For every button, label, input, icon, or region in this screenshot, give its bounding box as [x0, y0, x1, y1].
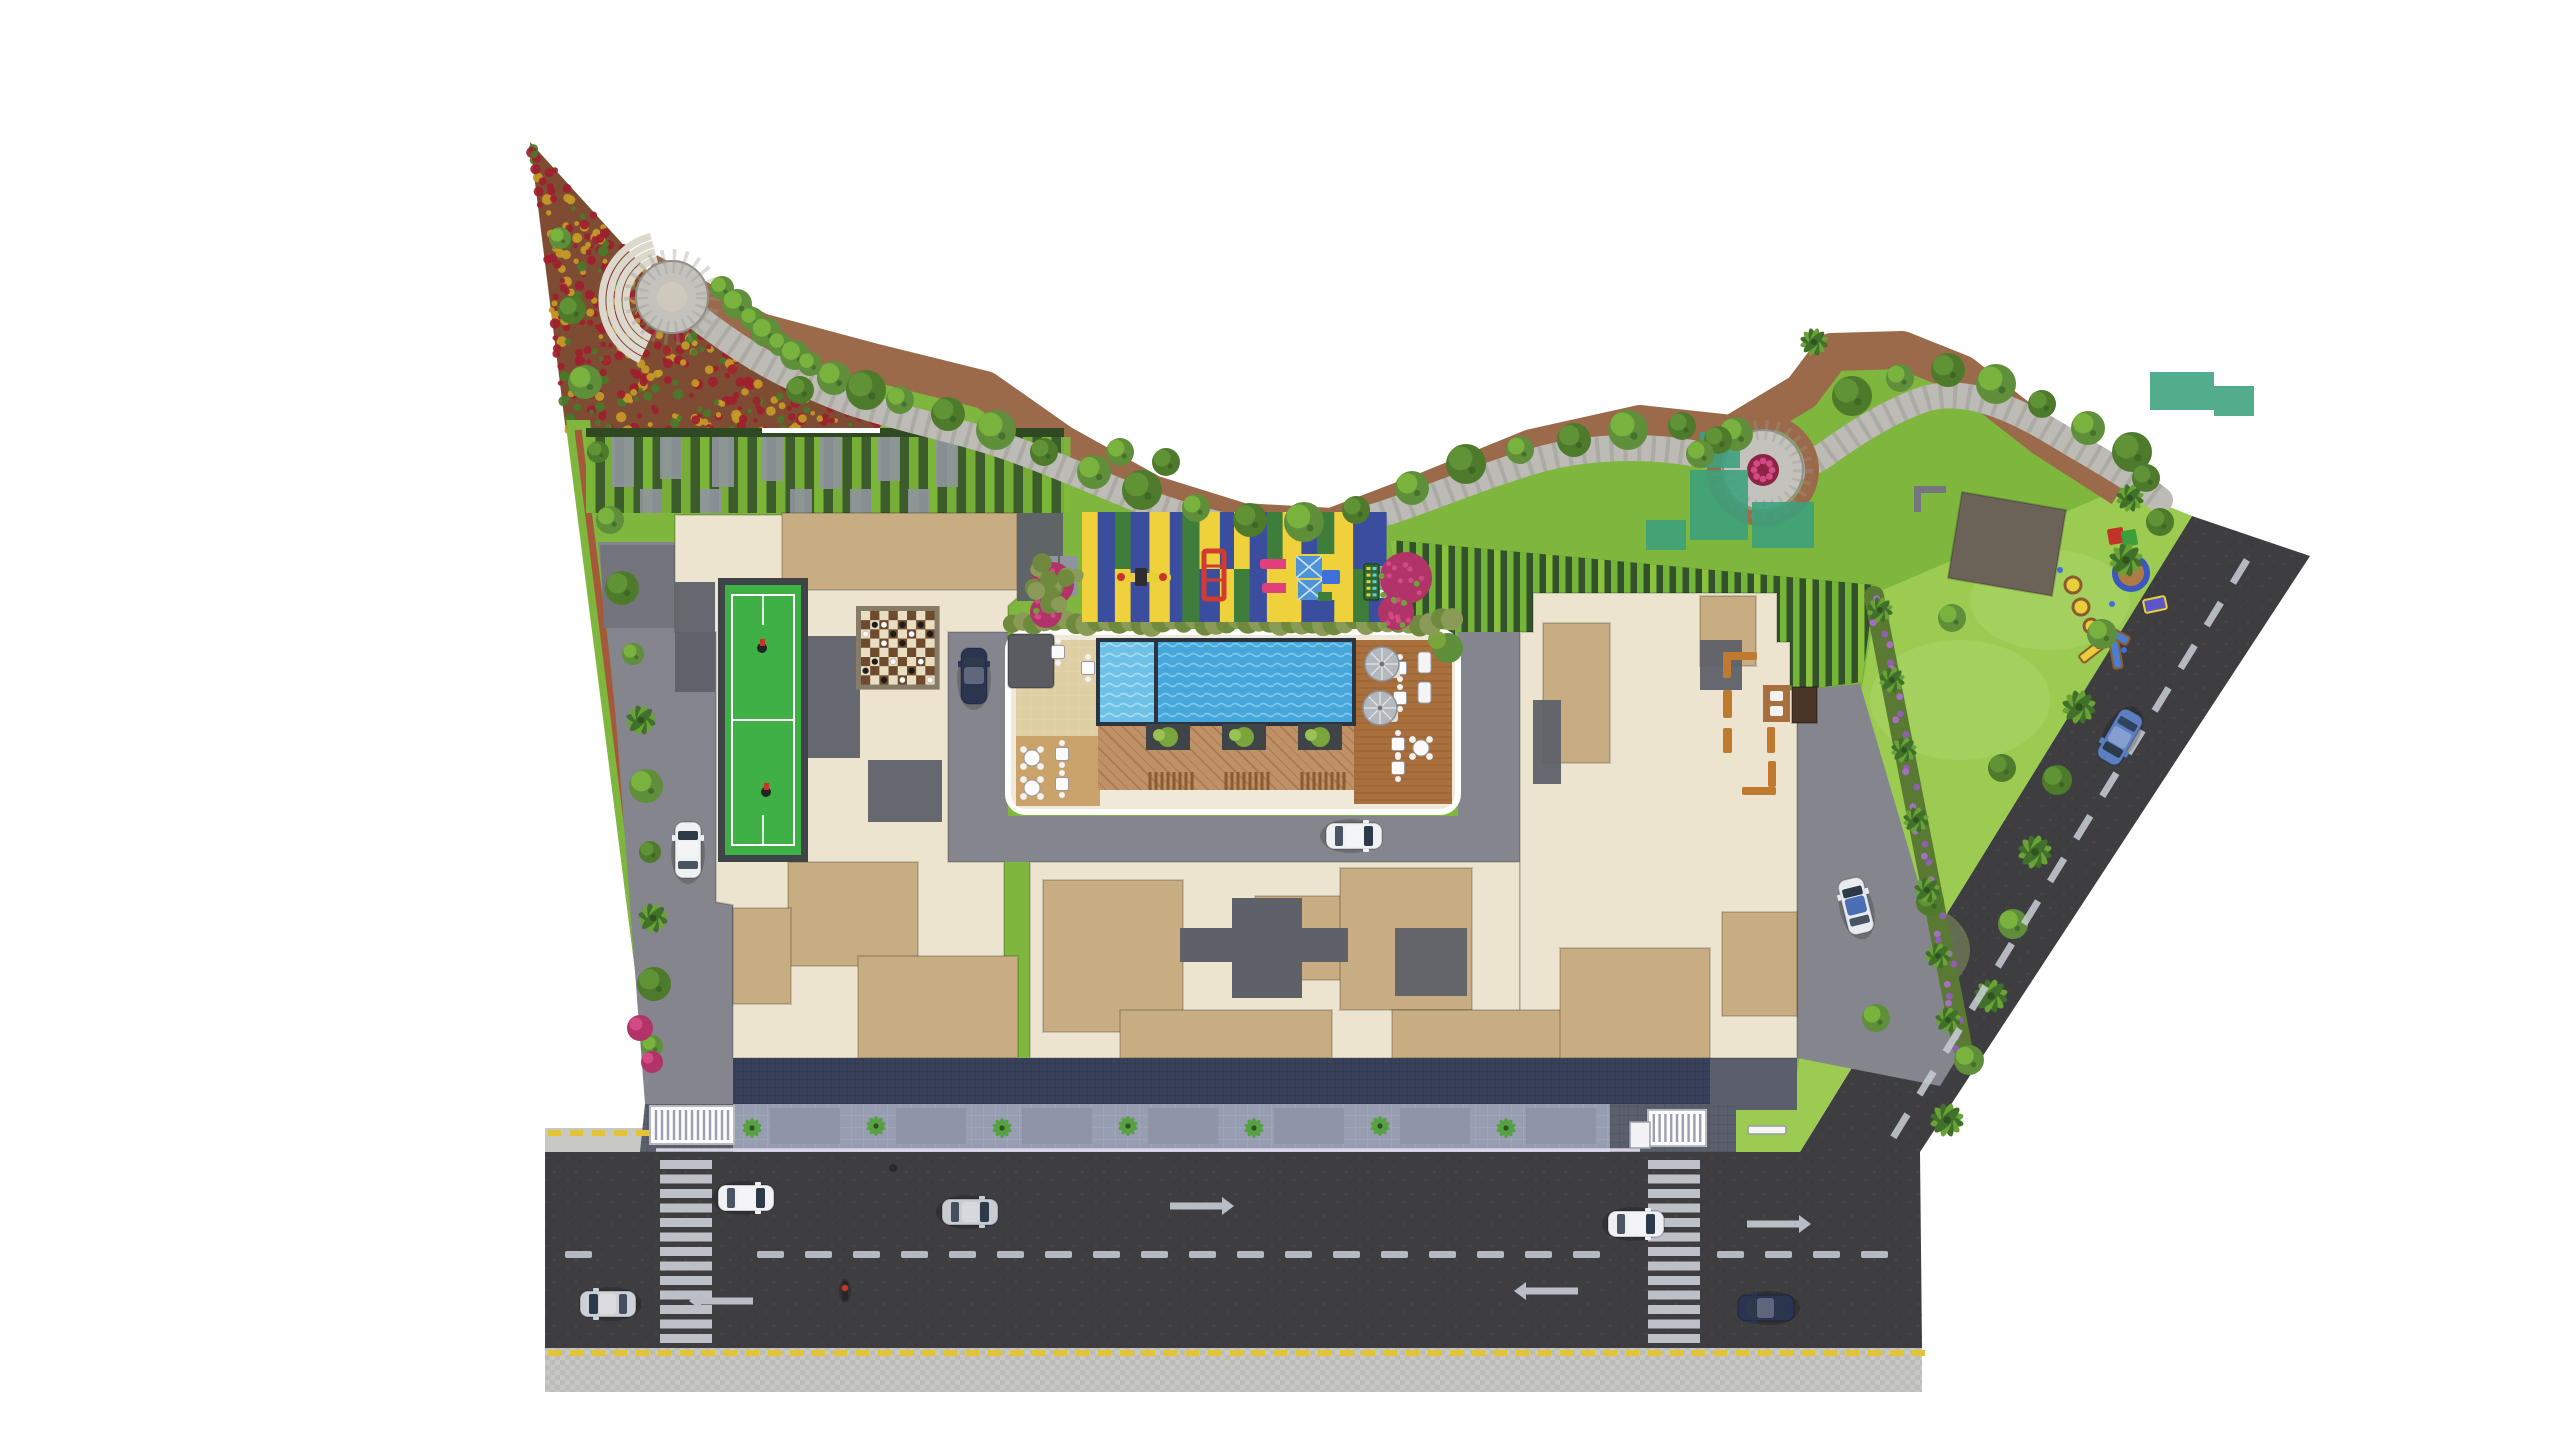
board-mark [1367, 593, 1371, 596]
chess-piece [918, 659, 924, 665]
tactile-strip [1846, 1350, 1859, 1356]
garden-fence [762, 428, 880, 433]
play-surface-stripe [1082, 512, 1098, 569]
board-mark [1367, 580, 1371, 583]
play-surface-stripe [1234, 569, 1250, 622]
chess-square [907, 639, 916, 648]
tactile-strip [614, 1350, 627, 1356]
bloom [552, 300, 558, 306]
chess-piece [899, 640, 905, 646]
tree-highlight [1688, 442, 1705, 459]
tactile-strip [1142, 1350, 1155, 1356]
bloom [583, 346, 591, 354]
tree-shade [1738, 436, 1744, 442]
play-equipment [1318, 592, 1332, 601]
tactile-strip [944, 1350, 957, 1356]
lane-divider-dash [949, 1251, 976, 1258]
purple-bloom [1913, 784, 1920, 791]
tree-highlight [607, 573, 627, 593]
tactile-strip [658, 1350, 671, 1356]
tree-shade [2148, 480, 2153, 485]
chair [1409, 753, 1416, 760]
crosswalk-bar [1648, 1160, 1700, 1169]
palm-center [749, 1125, 754, 1130]
palm-center [2075, 703, 2082, 710]
tree-highlight [1344, 498, 1361, 515]
bloom [587, 320, 593, 326]
car-roof [1346, 826, 1363, 846]
car-windshield [980, 1202, 989, 1222]
tree-shade [1252, 522, 1258, 528]
chess-square [861, 639, 870, 648]
badminton-court [718, 578, 808, 862]
deck-table [1392, 762, 1405, 775]
crosswalk-bar [660, 1247, 712, 1256]
bloom [559, 283, 567, 291]
tree-shade [624, 590, 630, 596]
board-mark [1367, 567, 1371, 570]
car-mirror [958, 661, 962, 667]
chess-square [907, 657, 916, 666]
hedge-shrub [1051, 597, 1064, 610]
chess-square [898, 611, 907, 620]
bloom [549, 307, 555, 313]
play-surface-stripe [1098, 512, 1116, 569]
tree-highlight [1448, 446, 1472, 470]
sidewalk-slab [896, 1108, 966, 1144]
bloom [617, 390, 626, 399]
bloom [557, 363, 564, 370]
tactile-strip [724, 1350, 737, 1356]
chess-piece [872, 622, 878, 628]
chess-square [916, 629, 925, 638]
bloom [643, 1053, 654, 1064]
chess-piece [899, 677, 905, 683]
lounger [1418, 652, 1431, 673]
tree-shade [950, 416, 956, 422]
lane-divider-dash [1861, 1251, 1888, 1258]
bloom [735, 377, 745, 387]
lane-divider-dash [1285, 1251, 1312, 1258]
tree-highlight [2089, 621, 2107, 639]
car-rear-glass [678, 861, 698, 869]
car-rear-glass [1617, 1214, 1625, 1234]
tactile-strip [570, 1130, 583, 1136]
bloom [558, 381, 563, 386]
tree-highlight [819, 363, 839, 383]
tower-roof-block [858, 956, 1018, 1058]
bloom [714, 399, 720, 405]
lawn-paver-pad [762, 437, 784, 481]
chess-square [925, 611, 934, 620]
umbrella-pole [1378, 706, 1383, 711]
lane-divider-dash [1333, 1251, 1360, 1258]
tree-highlight [631, 771, 651, 791]
tower-roof-block [1722, 912, 1797, 1016]
tactile-strip [1032, 1350, 1045, 1356]
lane-divider-dash [1045, 1251, 1072, 1258]
car-road-east-1 [712, 1181, 774, 1215]
play-surface-stripe [1182, 569, 1200, 622]
tree-highlight [2044, 767, 2062, 785]
chess-square [879, 666, 888, 675]
bloom [811, 411, 816, 416]
chess-square [907, 675, 916, 684]
crosswalk-bar [1648, 1320, 1700, 1329]
play-surface-stripe [1115, 512, 1131, 569]
flower-dot [1769, 467, 1776, 474]
bloom [1396, 618, 1401, 623]
bloom [1406, 618, 1411, 623]
tactile-strip [636, 1350, 649, 1356]
car-road-east-3 [1602, 1207, 1664, 1241]
bloom [546, 210, 551, 215]
bloom [705, 365, 714, 374]
lane-divider-dash [757, 1251, 784, 1258]
bloom [573, 243, 578, 248]
crosswalk-bar [660, 1160, 712, 1169]
tree-highlight [711, 277, 725, 291]
chess-square [898, 648, 907, 657]
chess-square [907, 648, 916, 657]
crosswalk-bar [660, 1276, 712, 1285]
tree-shade [1878, 1020, 1883, 1025]
purple-bloom [1946, 993, 1953, 1000]
car-mirror [755, 1182, 761, 1186]
lane-divider-dash [1381, 1251, 1408, 1258]
tactile-strip [1076, 1350, 1089, 1356]
tree-shade [1414, 490, 1420, 496]
bloom [707, 345, 712, 350]
tactile-strip [1604, 1350, 1617, 1356]
bloom [745, 382, 750, 387]
tree-highlight [2073, 413, 2093, 433]
palm-center [1901, 747, 1907, 753]
crosswalk-bar [660, 1189, 712, 1198]
palm-center [2127, 495, 2133, 501]
roof-courtyard [1395, 928, 1467, 996]
car-mirror [1363, 820, 1369, 824]
tree-highlight [588, 442, 601, 455]
play-surface-stripe [1098, 569, 1116, 622]
garden-bench [1914, 486, 1921, 512]
site-plan-stage [0, 0, 2560, 1441]
car-rear-glass [964, 687, 984, 695]
tree-highlight [741, 308, 755, 322]
purple-bloom [1896, 693, 1903, 700]
tree-highlight [753, 319, 771, 337]
bloom [562, 250, 571, 259]
bloom [580, 214, 586, 220]
palm-center [1125, 1123, 1130, 1128]
hedge-shrub [1027, 582, 1045, 600]
tactile-strip [1120, 1350, 1133, 1356]
gate-house [1630, 1122, 1650, 1148]
bloom [599, 356, 604, 361]
bloom [579, 358, 586, 365]
tree-shade [1998, 386, 2005, 393]
wood-bench [1723, 728, 1732, 753]
hedge-row [681, 437, 691, 513]
deck-table [1082, 662, 1095, 675]
chair [1397, 706, 1403, 712]
deck-table [1052, 646, 1065, 659]
tree-shade [811, 365, 815, 369]
bloom [571, 206, 576, 211]
crosswalk-bar [660, 1204, 712, 1213]
car-windshield [964, 657, 984, 666]
bloom [553, 335, 558, 340]
tree-highlight [1888, 366, 1905, 383]
tree-shade [1720, 442, 1725, 447]
bloom [1398, 578, 1403, 583]
chair [1395, 754, 1401, 760]
flower-dot [1751, 467, 1758, 474]
bloom [586, 249, 592, 255]
chess-square [889, 666, 898, 675]
bloom [651, 405, 657, 411]
tree-shade [599, 453, 603, 457]
kids-play-area [1030, 512, 1432, 630]
lane-divider-dash [1573, 1251, 1600, 1258]
bloom [677, 415, 682, 420]
tactile-strip [988, 1350, 1001, 1356]
play-equipment [1117, 573, 1125, 581]
bloom [779, 402, 786, 409]
bloom [585, 242, 591, 248]
wood-bench [1768, 761, 1776, 787]
tactile-strip [1670, 1350, 1683, 1356]
bloom [692, 341, 697, 346]
bloom [646, 373, 654, 381]
chess-square [925, 620, 934, 629]
chess-square [879, 657, 888, 666]
tactile-strip [1516, 1350, 1529, 1356]
bloom [577, 262, 587, 272]
palm-center [1811, 339, 1817, 345]
bloom [534, 187, 544, 197]
tree-shade [1468, 466, 1475, 473]
car-mirror [1751, 1321, 1757, 1325]
toy [2073, 599, 2089, 615]
chess-piece [890, 659, 896, 665]
purple-bloom [1892, 716, 1899, 723]
bloom [584, 233, 591, 240]
tactile-strip [1186, 1350, 1199, 1356]
car-roof [678, 841, 698, 858]
tree-highlight [1956, 1047, 1974, 1065]
tree-highlight [1978, 366, 2002, 390]
chair [1020, 763, 1027, 770]
bloom [596, 234, 605, 243]
bloom [574, 221, 579, 226]
leaf [1033, 608, 1039, 614]
tactile-strip [1340, 1350, 1353, 1356]
car-windshield [1364, 826, 1373, 846]
bloom [719, 401, 725, 407]
tree-shade [1168, 464, 1173, 469]
tactile-strip [812, 1350, 825, 1356]
tactile-strip [570, 1350, 583, 1356]
chess-square [879, 648, 888, 657]
outdoor-chess [856, 606, 940, 690]
tree-shade [1971, 1062, 1976, 1067]
car-courtyard-south [1320, 819, 1382, 853]
bloom [689, 393, 694, 398]
tree-highlight [799, 353, 813, 367]
accent-lawn [2150, 372, 2214, 410]
bloom [651, 384, 660, 393]
bloom [634, 397, 639, 402]
flower-dot [1753, 460, 1760, 467]
tower-roof-block [1560, 948, 1710, 1058]
palm-center [873, 1123, 878, 1128]
tree-shade [1630, 432, 1637, 439]
white-bench [1748, 1126, 1786, 1134]
palm-center [1945, 1017, 1951, 1023]
play-equipment [1159, 573, 1167, 581]
tactile-strip [680, 1350, 693, 1356]
accent-lawn [1690, 470, 1748, 540]
tactile-strip [592, 1350, 605, 1356]
play-surface-stripe [1082, 569, 1098, 622]
tactile-strip [834, 1350, 847, 1356]
crosswalk-bar [660, 1218, 712, 1227]
chair [1409, 736, 1416, 743]
purple-bloom [1935, 937, 1942, 944]
tactile-strip [1384, 1350, 1397, 1356]
play-surface-stripe [1170, 569, 1183, 622]
bloom [637, 413, 642, 418]
tree-shade [656, 986, 662, 992]
chess-piece [881, 640, 887, 646]
leaf [1414, 581, 1420, 587]
car-mirror [1751, 1292, 1757, 1296]
accent-lawn [1752, 502, 1814, 548]
chess-piece [881, 677, 887, 683]
palm-center [1503, 1125, 1508, 1130]
palm-center [1935, 953, 1941, 959]
tree-highlight [978, 412, 1002, 436]
accent-lawn [1646, 520, 1686, 550]
tree-highlight [1670, 414, 1687, 431]
tactile-strip [1626, 1350, 1639, 1356]
entrance-deck [1763, 685, 1790, 722]
leaf [1391, 597, 1397, 603]
bloom [713, 366, 719, 372]
tree-shade [2015, 926, 2020, 931]
tree-highlight [1834, 378, 1858, 402]
chess-square [879, 629, 888, 638]
deck-table [1056, 778, 1069, 791]
tactile-strip [1802, 1350, 1815, 1356]
tactile-strip [1252, 1350, 1265, 1356]
palm-center [999, 1125, 1004, 1130]
tactile-strip [790, 1350, 803, 1356]
tree-shade [587, 384, 593, 390]
tree-shade [1522, 452, 1527, 457]
car-rear-glass [951, 1202, 959, 1222]
tactile-strip [768, 1350, 781, 1356]
tree-shade [2104, 636, 2109, 641]
bloom [680, 359, 686, 365]
bloom [672, 413, 677, 418]
tactile-strip [1054, 1350, 1067, 1356]
pedestrian [889, 1164, 897, 1172]
bloom [817, 415, 824, 422]
bloom [638, 388, 643, 393]
round-table [1024, 750, 1040, 766]
bloom [691, 416, 700, 425]
chair [1426, 753, 1433, 760]
car-rear-glass [1777, 1298, 1785, 1318]
tactile-strip [1736, 1350, 1749, 1356]
car-mirror [593, 1317, 599, 1321]
bloom [739, 415, 747, 423]
tower-roof-block [1392, 1010, 1570, 1058]
planter-bed [1792, 687, 1817, 723]
tactile-strip [1472, 1350, 1485, 1356]
bloom [616, 412, 626, 422]
lane-divider-dash [1237, 1251, 1264, 1258]
bloom [1403, 562, 1408, 567]
tree-shade [2090, 430, 2096, 436]
tactile-strip [966, 1350, 979, 1356]
bloom [708, 377, 718, 387]
chess-square [870, 675, 879, 684]
tactile-strip [1868, 1350, 1881, 1356]
chair [1037, 776, 1044, 783]
car-mirror [672, 835, 676, 841]
chair [1037, 793, 1044, 800]
bloom [1419, 576, 1424, 581]
car-parked-pool-west [957, 648, 991, 710]
tree-highlight [1706, 428, 1723, 445]
chess-square [898, 657, 907, 666]
tactile-strip [1758, 1350, 1771, 1356]
tactile-strip [900, 1350, 913, 1356]
chess-piece [863, 668, 869, 674]
bloom [829, 418, 835, 424]
deck-table [1392, 738, 1405, 751]
car-rear-glass [727, 1188, 735, 1208]
tactile-strip [1582, 1350, 1595, 1356]
tactile-strip [1274, 1350, 1287, 1356]
chess-square [916, 666, 925, 675]
bloom [692, 379, 700, 387]
bloom [663, 346, 672, 355]
tactile-strip [1648, 1350, 1661, 1356]
residential-site-plan [0, 0, 2560, 1441]
chess-piece [909, 631, 915, 637]
tree-highlight [1124, 472, 1148, 496]
car-mirror [1363, 849, 1369, 853]
bloom [643, 392, 652, 401]
bloom [724, 373, 730, 379]
accent-lawn [2214, 386, 2254, 416]
swimming-pool [1156, 640, 1354, 724]
tree-highlight [2148, 510, 2165, 527]
crosswalk-bar [660, 1262, 712, 1271]
tree-shade [1046, 454, 1051, 459]
tree-highlight [560, 298, 577, 315]
chess-square [861, 657, 870, 666]
toy [2057, 567, 2063, 573]
purple-bloom [1934, 931, 1941, 938]
tree-shade [1854, 398, 1861, 405]
car-windshield [756, 1188, 765, 1208]
tree-shade [802, 392, 807, 397]
